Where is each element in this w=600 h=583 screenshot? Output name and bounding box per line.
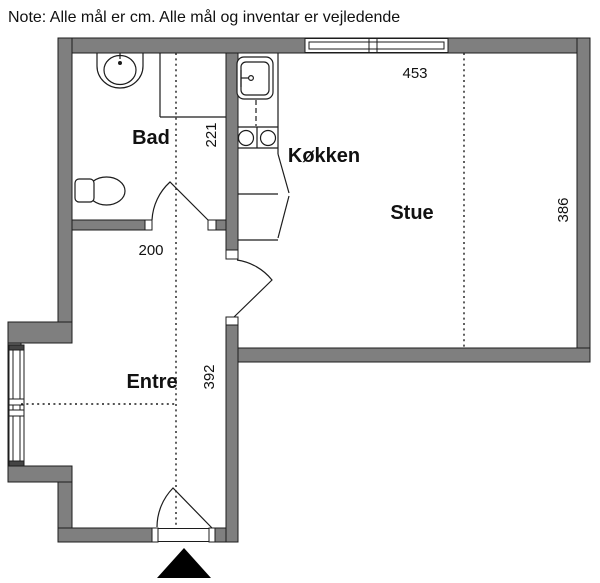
entre-bay-window bbox=[9, 345, 24, 466]
note-text: Note: Alle mål er cm. Alle mål og invent… bbox=[8, 8, 400, 26]
wall-right bbox=[577, 38, 590, 362]
cabinet-door-tick-lower bbox=[278, 196, 289, 238]
entrance-door-swing bbox=[157, 488, 212, 528]
bad-door-swing bbox=[152, 182, 208, 220]
measure-lines bbox=[21, 53, 464, 528]
jamb-stue-door-top bbox=[226, 250, 238, 259]
jamb-entrance-left bbox=[152, 528, 158, 542]
washbasin-icon bbox=[97, 53, 143, 88]
entrance-threshold bbox=[158, 529, 209, 542]
jamb-entrance-right bbox=[209, 528, 215, 542]
bay-window-cap-bottom bbox=[9, 461, 24, 466]
dim-hall-length: 392 bbox=[201, 364, 218, 389]
dim-stue-depth: 386 bbox=[555, 197, 572, 222]
floor-plan-page: Note: Alle mål er cm. Alle mål og invent… bbox=[0, 0, 600, 583]
wall-bottom-left bbox=[58, 528, 152, 542]
floor-plan-drawing: Note: Alle mål er cm. Alle mål og invent… bbox=[0, 0, 600, 583]
dim-hall-width: 200 bbox=[138, 242, 163, 259]
room-label-entre: Entre bbox=[126, 371, 177, 393]
toilet-cistern bbox=[75, 179, 94, 202]
wall-stue-bottom bbox=[226, 348, 590, 362]
wall-left-upper bbox=[58, 38, 72, 322]
dim-stue-width: 453 bbox=[402, 65, 427, 82]
wall-bay-jog-top bbox=[8, 322, 72, 343]
walls bbox=[8, 38, 590, 542]
wall-hall-right bbox=[226, 317, 238, 542]
burner-right bbox=[261, 131, 276, 146]
jamb-bad-door-left bbox=[145, 220, 152, 230]
toilet-icon bbox=[75, 177, 125, 205]
stove-icon bbox=[239, 127, 276, 148]
bay-window-mullion-lower bbox=[9, 410, 24, 416]
stue-door-swing bbox=[234, 260, 272, 317]
kitchen-sink-icon bbox=[237, 57, 273, 99]
wall-kitchen-west bbox=[226, 53, 238, 250]
entrance-arrow-icon bbox=[157, 548, 211, 578]
washbasin-drain bbox=[119, 62, 122, 65]
top-window bbox=[305, 39, 448, 53]
room-label-kokken: Køkken bbox=[288, 145, 360, 167]
burner-left bbox=[239, 131, 254, 146]
bay-window-cap-top bbox=[9, 345, 24, 350]
dim-bad-depth: 221 bbox=[203, 122, 220, 147]
room-label-stue: Stue bbox=[390, 202, 433, 224]
wall-bay-jog-bottom bbox=[8, 466, 72, 482]
wall-bad-south-stub bbox=[216, 220, 226, 230]
dimension-labels: 453 221 386 200 392 bbox=[138, 65, 572, 390]
washbasin-bowl bbox=[104, 56, 136, 85]
jamb-stue-door-bottom bbox=[226, 317, 238, 325]
room-label-bad: Bad bbox=[132, 127, 170, 149]
kitchen-fixtures bbox=[237, 53, 289, 240]
wall-bad-south bbox=[72, 220, 145, 230]
jamb-bad-door-right bbox=[208, 220, 216, 230]
